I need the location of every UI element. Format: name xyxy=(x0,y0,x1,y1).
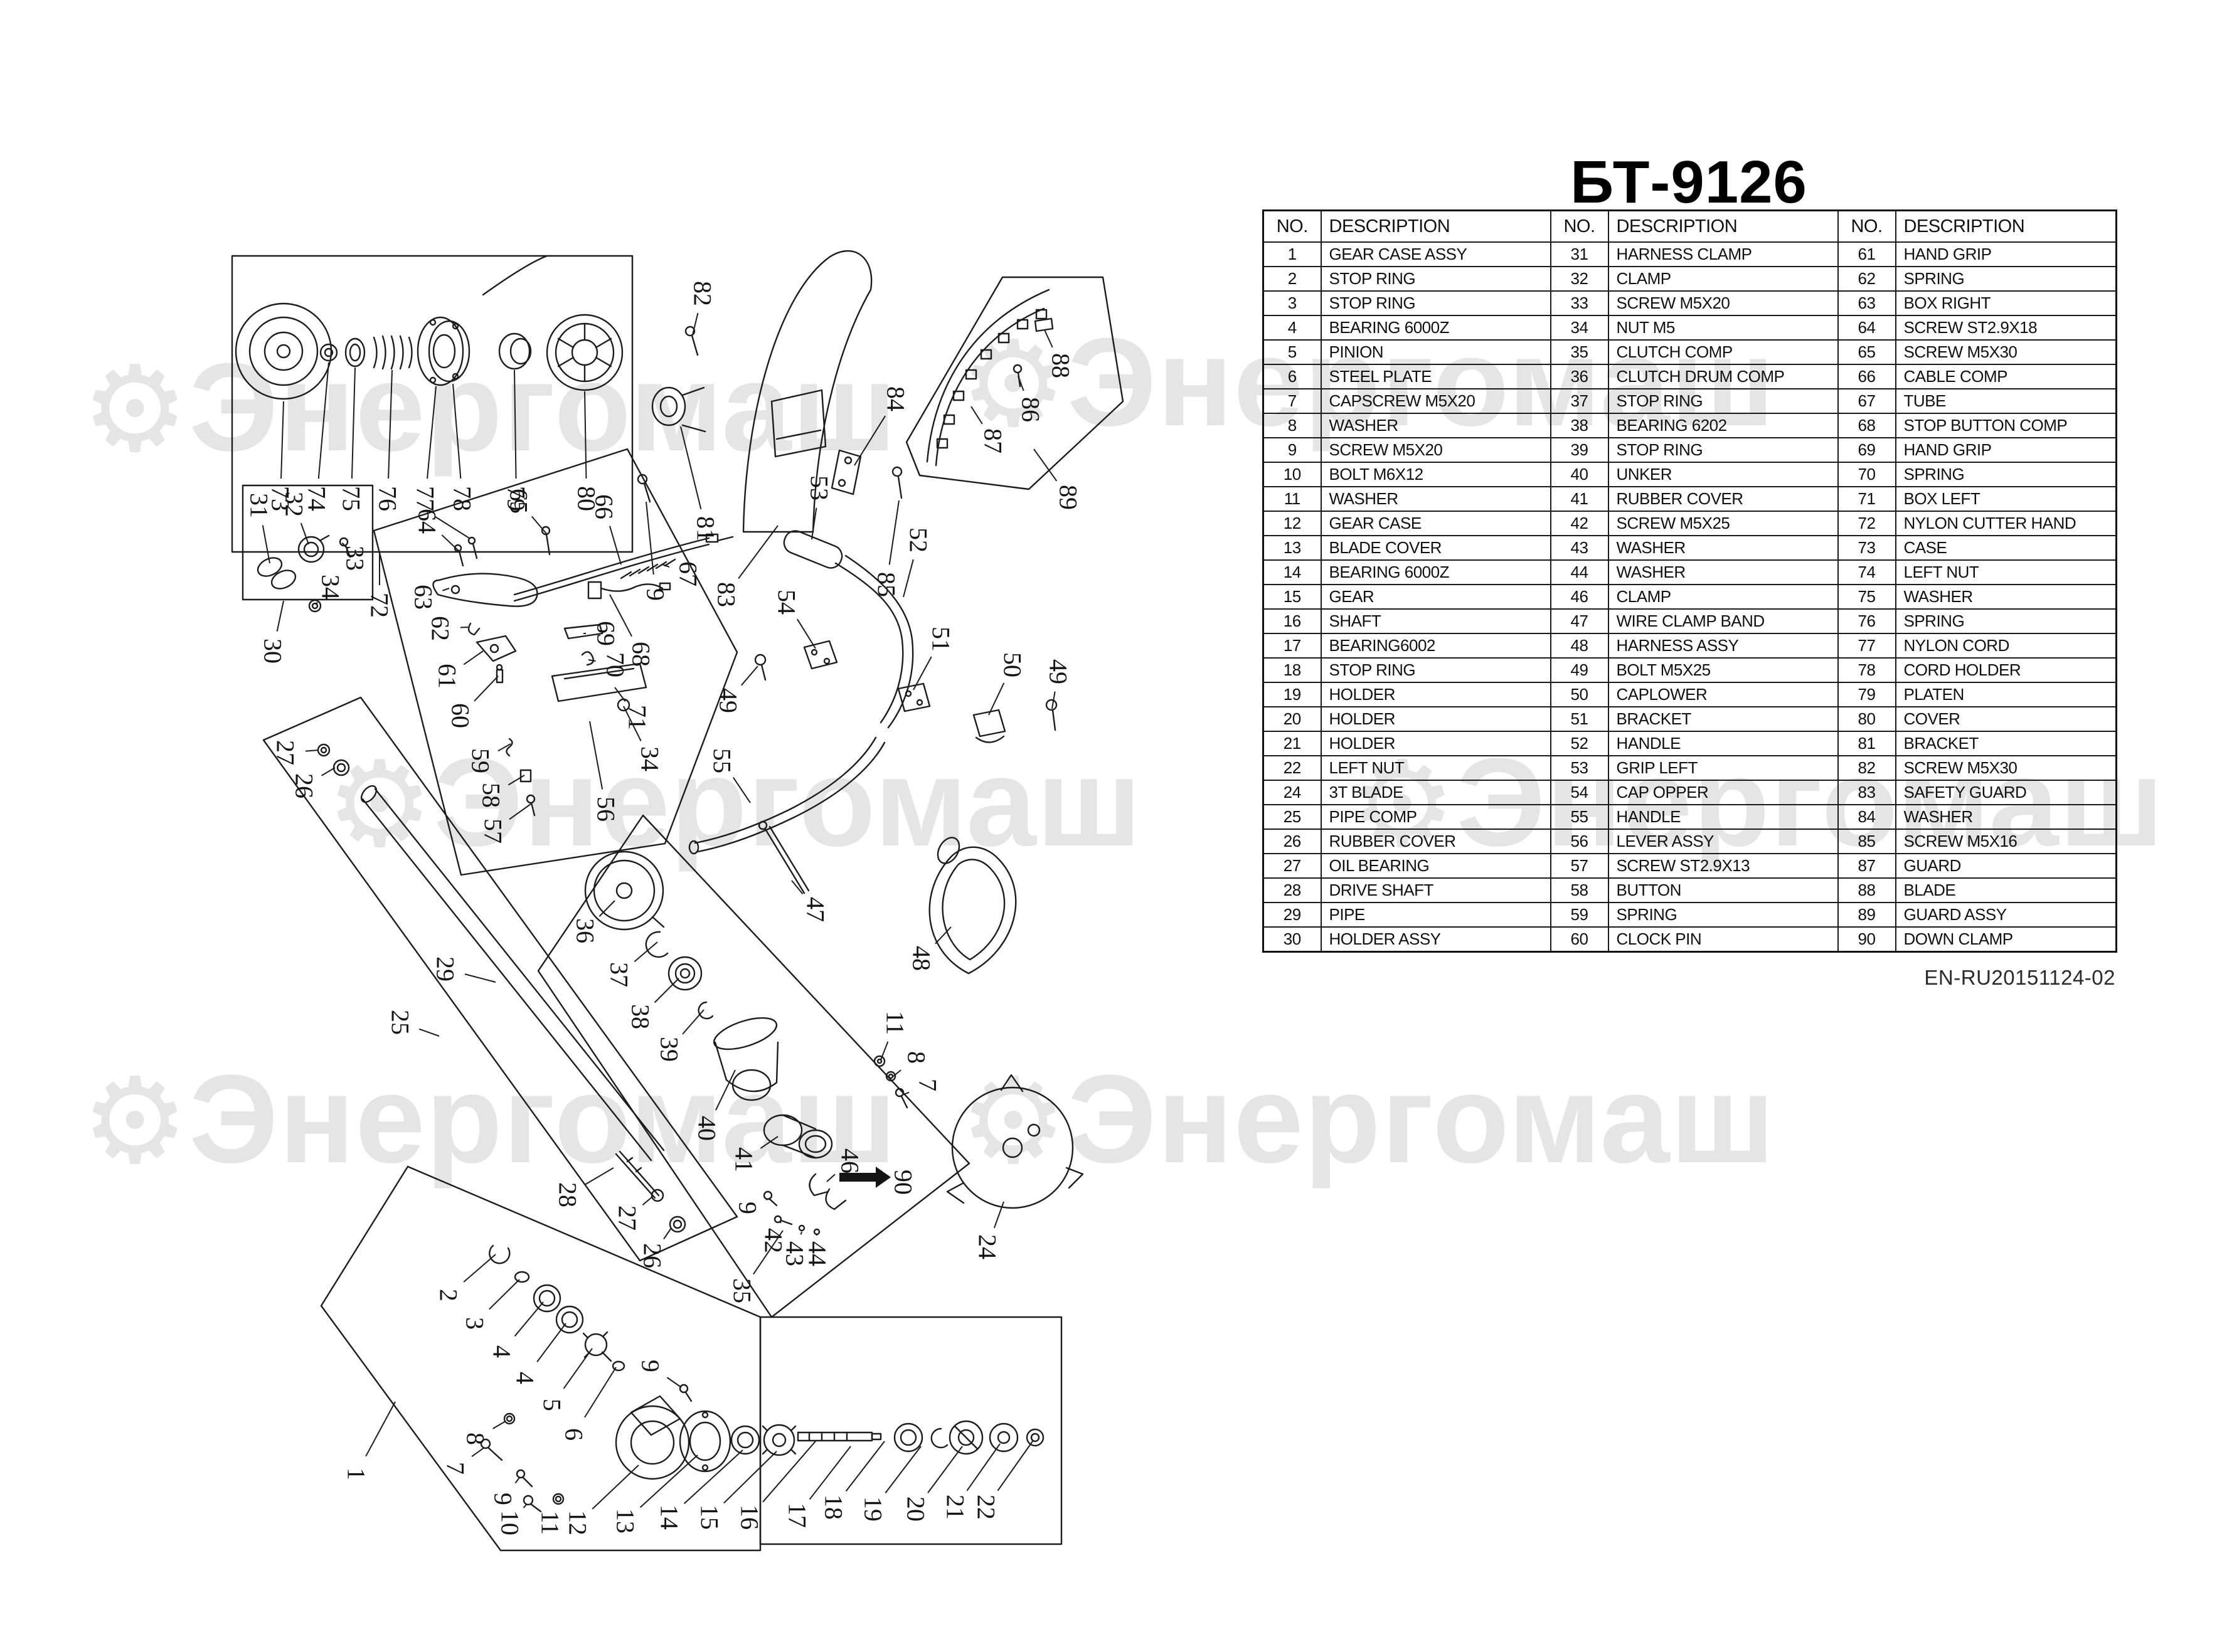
table-row: 8WASHER38BEARING 620268STOP BUTTON COMP xyxy=(1263,413,2117,438)
callout-number: 59 xyxy=(467,748,495,773)
callout-number: 64 xyxy=(413,509,442,534)
part-desc-cell: SCREW M5X30 xyxy=(1896,756,2117,780)
part-desc-cell: TUBE xyxy=(1896,389,2117,413)
callout-number: 6 xyxy=(560,1428,588,1441)
callout-number: 37 xyxy=(605,962,634,987)
part-desc-cell: SCREW M5X20 xyxy=(1321,438,1551,462)
callout-number: 21 xyxy=(942,1495,970,1520)
callout-number: 58 xyxy=(477,783,506,808)
leader-line xyxy=(827,1174,835,1182)
part-desc-cell: CLUTCH DRUM COMP xyxy=(1608,364,1838,389)
exploded-parts-diagram: 7273747576777879809818283848586878889313… xyxy=(0,0,1261,1652)
part-no-cell: 63 xyxy=(1838,291,1896,315)
table-row: 10BOLT M6X1240UNKER70SPRING xyxy=(1263,462,2117,487)
callout-number: 34 xyxy=(636,746,664,771)
part-desc-cell: HAND GRIP xyxy=(1896,242,2117,267)
part-desc-cell: LEFT NUT xyxy=(1321,756,1551,780)
part-desc-cell: HOLDER xyxy=(1321,707,1551,731)
leader-line xyxy=(903,559,913,597)
leader-line xyxy=(537,1323,566,1362)
part-desc-cell: RUBBER COVER xyxy=(1321,829,1551,854)
table-row: 3STOP RING33SCREW M5X2063BOX RIGHT xyxy=(1263,291,2117,315)
callout-number: 25 xyxy=(386,1010,415,1035)
table-row: 14BEARING 6000Z44WASHER74LEFT NUT xyxy=(1263,560,2117,585)
leader-line xyxy=(615,687,625,701)
part-desc-cell: WASHER xyxy=(1321,413,1551,438)
callout-number: 11 xyxy=(536,1511,565,1535)
part-desc-cell: STOP RING xyxy=(1321,267,1551,291)
leader-line xyxy=(515,1478,519,1483)
part-no-cell: 54 xyxy=(1551,780,1608,805)
callout-number: 26 xyxy=(639,1243,667,1268)
part-no-cell: 9 xyxy=(1263,438,1321,462)
leader-line xyxy=(281,401,284,479)
part-desc-cell: SCREW M5X16 xyxy=(1896,829,2117,854)
part-desc-cell: DRIVE SHAFT xyxy=(1321,878,1551,903)
part-desc-cell: SPRING xyxy=(1896,267,2117,291)
callout-number: 9 xyxy=(642,588,670,601)
callout-number: 76 xyxy=(374,486,402,511)
part-desc-cell: SCREW M5X20 xyxy=(1608,291,1838,315)
col-header-no: NO. xyxy=(1838,211,1896,243)
harness-parts xyxy=(759,822,1016,973)
part-desc-cell: BOX RIGHT xyxy=(1896,291,2117,315)
callout-number: 46 xyxy=(836,1148,864,1173)
part-no-cell: 1 xyxy=(1263,242,1321,267)
callout-number: 90 xyxy=(890,1170,918,1195)
callout-number: 9 xyxy=(637,1360,665,1372)
leader-line xyxy=(655,978,679,1002)
table-row: 13BLADE COVER43WASHER73CASE xyxy=(1263,536,2117,560)
part-no-cell: 37 xyxy=(1551,389,1608,413)
leader-line xyxy=(667,1377,681,1387)
part-no-cell: 77 xyxy=(1838,633,1896,658)
callout-number: 81 xyxy=(692,516,720,541)
part-desc-cell: NYLON CUTTER HAND xyxy=(1896,511,2117,536)
part-no-cell: 61 xyxy=(1838,242,1896,267)
part-desc-cell: BLADE COVER xyxy=(1321,536,1551,560)
callout-number: 50 xyxy=(999,652,1027,677)
part-no-cell: 41 xyxy=(1551,487,1608,511)
part-desc-cell: SCREW ST2.9X18 xyxy=(1896,315,2117,340)
callout-number: 11 xyxy=(881,1011,910,1035)
leader-line xyxy=(681,426,701,509)
part-desc-cell: WASHER xyxy=(1321,487,1551,511)
callout-number: 70 xyxy=(602,652,630,677)
clutch-parts xyxy=(585,852,907,1234)
part-desc-cell: COVER xyxy=(1896,707,2117,731)
leader-line xyxy=(890,500,899,564)
table-row: 5PINION35CLUTCH COMP65SCREW M5X30 xyxy=(1263,340,2117,364)
part-no-cell: 59 xyxy=(1551,903,1608,927)
part-no-cell: 12 xyxy=(1263,511,1321,536)
callout-number: 82 xyxy=(689,281,717,306)
part-desc-cell: GEAR CASE ASSY xyxy=(1321,242,1551,267)
leader-line xyxy=(366,1402,395,1456)
part-no-cell: 39 xyxy=(1551,438,1608,462)
part-desc-cell: BEARING 6000Z xyxy=(1321,315,1551,340)
col-header-no: NO. xyxy=(1551,211,1608,243)
leader-line xyxy=(885,1446,921,1493)
part-desc-cell: PINION xyxy=(1321,340,1551,364)
callout-number: 68 xyxy=(627,642,656,667)
callout-number: 61 xyxy=(433,664,462,689)
part-no-cell: 87 xyxy=(1838,854,1896,878)
part-no-cell: 22 xyxy=(1263,756,1321,780)
table-row: 18STOP RING49BOLT M5X2578CORD HOLDER xyxy=(1263,658,2117,682)
leader-line xyxy=(564,1348,592,1389)
part-desc-cell: BEARING6002 xyxy=(1321,633,1551,658)
table-row: 21HOLDER52HANDLE81BRACKET xyxy=(1263,731,2117,756)
leader-line xyxy=(997,1441,1033,1491)
leader-line xyxy=(388,370,392,479)
callout-number: 12 xyxy=(564,1510,592,1535)
table-row: 2STOP RING32CLAMP62SPRING xyxy=(1263,267,2117,291)
table-row: 20HOLDER51BRACKET80COVER xyxy=(1263,707,2117,731)
leader-line xyxy=(854,416,885,465)
leader-line xyxy=(642,1197,652,1205)
part-no-cell: 40 xyxy=(1551,462,1608,487)
part-desc-cell: STOP RING xyxy=(1321,291,1551,315)
leader-line xyxy=(508,775,524,785)
part-desc-cell: SCREW M5X30 xyxy=(1896,340,2117,364)
blade-part xyxy=(947,1075,1083,1208)
trimmer-head-parts xyxy=(236,256,622,399)
page: ⚙Энергомаш ⚙Энергомаш ⚙Энергомаш ⚙Энерго… xyxy=(0,0,2217,1652)
part-desc-cell: STOP RING xyxy=(1608,389,1838,413)
part-no-cell: 64 xyxy=(1838,315,1896,340)
col-header-no: NO. xyxy=(1263,211,1321,243)
part-no-cell: 84 xyxy=(1838,805,1896,829)
leader-line xyxy=(427,386,436,479)
callout-number: 89 xyxy=(1055,485,1083,510)
leader-line xyxy=(306,750,319,751)
leader-line xyxy=(588,660,596,661)
callout-number: 27 xyxy=(272,740,300,765)
callout-number: 39 xyxy=(656,1037,684,1062)
leader-line xyxy=(610,526,621,564)
leader-line xyxy=(881,1042,888,1060)
part-desc-cell: SAFETY GUARD xyxy=(1896,780,2117,805)
callout-number: 4 xyxy=(511,1372,540,1384)
col-header-description: DESCRIPTION xyxy=(1896,211,2117,243)
callout-number: 55 xyxy=(708,748,736,773)
callout-number: 13 xyxy=(612,1508,640,1533)
leader-line xyxy=(585,1367,616,1417)
gear-case-parts xyxy=(481,1246,1043,1512)
callout-number: 84 xyxy=(882,386,910,411)
callout-number: 35 xyxy=(728,1278,757,1303)
table-row: 25PIPE COMP55HANDLE84WASHER xyxy=(1263,805,2117,829)
part-no-cell: 85 xyxy=(1838,829,1896,854)
part-desc-cell: STEEL PLATE xyxy=(1321,364,1551,389)
leader-line xyxy=(801,1232,802,1234)
part-no-cell: 76 xyxy=(1838,609,1896,633)
leader-line xyxy=(474,676,498,701)
part-no-cell: 56 xyxy=(1551,829,1608,854)
part-desc-cell: CAPLOWER xyxy=(1608,682,1838,707)
callout-number: 31 xyxy=(245,493,274,518)
parts-table: NO. DESCRIPTION NO. DESCRIPTION NO. DESC… xyxy=(1262,209,2117,953)
table-row: 30HOLDER ASSY60CLOCK PIN90DOWN CLAMP xyxy=(1263,927,2117,951)
leader-line xyxy=(453,384,460,479)
part-desc-cell: STOP RING xyxy=(1608,438,1838,462)
leader-line xyxy=(263,525,270,563)
part-desc-cell: BEARING 6000Z xyxy=(1321,560,1551,585)
part-no-cell: 34 xyxy=(1551,315,1608,340)
part-no-cell: 28 xyxy=(1263,878,1321,903)
part-desc-cell: BUTTON xyxy=(1608,878,1838,903)
part-no-cell: 7 xyxy=(1263,389,1321,413)
callout-number: 3 xyxy=(461,1317,489,1330)
part-no-cell: 81 xyxy=(1838,731,1896,756)
table-row: 29PIPE59SPRING89GUARD ASSY xyxy=(1263,903,2117,927)
part-no-cell: 18 xyxy=(1263,658,1321,682)
part-desc-cell: LEVER ASSY xyxy=(1608,829,1838,854)
part-desc-cell: BEARING 6202 xyxy=(1608,413,1838,438)
part-no-cell: 53 xyxy=(1551,756,1608,780)
leader-line xyxy=(464,1254,496,1282)
part-desc-cell: SPRING xyxy=(1608,903,1838,927)
callout-number: 88 xyxy=(1047,353,1075,378)
callout-number: 38 xyxy=(627,1004,655,1029)
callout-number: 2 xyxy=(435,1289,463,1301)
part-no-cell: 75 xyxy=(1838,585,1896,609)
callout-number: 53 xyxy=(805,475,834,500)
part-desc-cell: CASE xyxy=(1896,536,2117,560)
leader-line xyxy=(592,1465,639,1509)
part-desc-cell: WASHER xyxy=(1896,805,2117,829)
part-no-cell: 14 xyxy=(1263,560,1321,585)
part-no-cell: 2 xyxy=(1263,267,1321,291)
part-desc-cell: CLOCK PIN xyxy=(1608,927,1838,951)
part-desc-cell: CAPSCREW M5X20 xyxy=(1321,389,1551,413)
part-desc-cell: BRACKET xyxy=(1608,707,1838,731)
part-desc-cell: PIPE xyxy=(1321,903,1551,927)
callout-number: 62 xyxy=(427,616,455,641)
part-no-cell: 82 xyxy=(1838,756,1896,780)
callout-number: 65 xyxy=(505,489,533,514)
part-no-cell: 3 xyxy=(1263,291,1321,315)
part-no-cell: 42 xyxy=(1551,511,1608,536)
part-no-cell: 38 xyxy=(1551,413,1608,438)
parts-table-header-row: NO. DESCRIPTION NO. DESCRIPTION NO. DESC… xyxy=(1263,211,2117,243)
part-no-cell: 16 xyxy=(1263,609,1321,633)
part-no-cell: 49 xyxy=(1551,658,1608,682)
part-desc-cell: SCREW M5X25 xyxy=(1608,511,1838,536)
leader-line xyxy=(460,627,468,628)
part-desc-cell: NYLON CORD xyxy=(1896,633,2117,658)
part-no-cell: 6 xyxy=(1263,364,1321,389)
callout-number: 8 xyxy=(903,1051,931,1064)
part-no-cell: 79 xyxy=(1838,682,1896,707)
leader-line xyxy=(585,1168,614,1185)
leader-line xyxy=(967,1444,1000,1491)
callout-number: 67 xyxy=(674,561,703,586)
table-row: 9SCREW M5X2039STOP RING69HAND GRIP xyxy=(1263,438,2117,462)
table-row: 27OIL BEARING57SCREW ST2.9X1387GUARD xyxy=(1263,854,2117,878)
part-desc-cell: WIRE CLAMP BAND xyxy=(1608,609,1838,633)
leader-line xyxy=(472,1448,484,1456)
part-no-cell: 47 xyxy=(1551,609,1608,633)
part-no-cell: 62 xyxy=(1838,267,1896,291)
pipe-parts xyxy=(318,744,685,1232)
callout-number: 33 xyxy=(341,546,369,571)
callout-number: 54 xyxy=(773,590,801,615)
callout-number: 10 xyxy=(496,1510,524,1535)
part-no-cell: 11 xyxy=(1263,487,1321,511)
part-no-cell: 83 xyxy=(1838,780,1896,805)
callout-number: 30 xyxy=(259,638,287,664)
part-desc-cell: HANDLE xyxy=(1608,731,1838,756)
callout-number: 49 xyxy=(1045,659,1073,684)
part-desc-cell: BOLT M6X12 xyxy=(1321,462,1551,487)
leader-line xyxy=(489,1279,519,1310)
leader-line xyxy=(1034,449,1056,481)
leader-line xyxy=(442,588,449,591)
callout-number: 8 xyxy=(462,1432,490,1445)
table-row: 26RUBBER COVER56LEVER ASSY85SCREW M5X16 xyxy=(1263,829,2117,854)
part-no-cell: 32 xyxy=(1551,267,1608,291)
callout-number: 15 xyxy=(696,1505,724,1530)
callout-number: 48 xyxy=(908,946,936,971)
callout-number: 7 xyxy=(914,1079,942,1091)
table-row: 1GEAR CASE ASSY31HARNESS CLAMP61HAND GRI… xyxy=(1263,242,2117,267)
leader-line xyxy=(797,619,816,649)
callout-number: 56 xyxy=(592,797,620,822)
callout-number: 75 xyxy=(338,486,366,511)
part-no-cell: 36 xyxy=(1551,364,1608,389)
part-no-cell: 50 xyxy=(1551,682,1608,707)
leader-line xyxy=(646,502,654,574)
callout-number: 52 xyxy=(905,527,933,553)
col-header-description: DESCRIPTION xyxy=(1321,211,1551,243)
leader-line xyxy=(514,370,516,479)
callout-number: 51 xyxy=(927,627,955,652)
leader-line xyxy=(532,516,547,534)
part-no-cell: 15 xyxy=(1263,585,1321,609)
leader-line xyxy=(760,1136,778,1148)
callout-number: 9 xyxy=(489,1493,518,1505)
callout-number: 7 xyxy=(442,1462,470,1475)
callout-number: 71 xyxy=(624,705,652,730)
part-no-cell: 73 xyxy=(1838,536,1896,560)
leader-line xyxy=(509,804,531,819)
part-desc-cell: STOP RING xyxy=(1321,658,1551,682)
part-desc-cell: CLAMP xyxy=(1608,267,1838,291)
leader-line xyxy=(664,1228,671,1239)
part-desc-cell: RUBBER COVER xyxy=(1608,487,1838,511)
callout-number: 9 xyxy=(734,1202,762,1214)
part-desc-cell: SPRING xyxy=(1896,609,2117,633)
part-no-cell: 8 xyxy=(1263,413,1321,438)
part-desc-cell: PIPE COMP xyxy=(1321,805,1551,829)
part-desc-cell: CABLE COMP xyxy=(1896,364,2117,389)
leader-line xyxy=(1045,330,1053,347)
part-no-cell: 78 xyxy=(1838,658,1896,682)
callout-number: 83 xyxy=(713,582,741,607)
part-no-cell: 43 xyxy=(1551,536,1608,560)
leader-line xyxy=(419,1029,439,1036)
part-no-cell: 89 xyxy=(1838,903,1896,927)
leader-line xyxy=(742,666,758,686)
part-desc-cell: HANDLE xyxy=(1608,805,1838,829)
callout-number: 66 xyxy=(590,494,619,519)
callout-number: 40 xyxy=(693,1116,721,1141)
part-desc-cell: GUARD ASSY xyxy=(1896,903,2117,927)
part-no-cell: 88 xyxy=(1838,878,1896,903)
callout-number: 26 xyxy=(290,773,319,798)
part-desc-cell: GRIP LEFT xyxy=(1608,756,1838,780)
leader-line xyxy=(590,721,602,790)
part-desc-cell: HARNESS CLAMP xyxy=(1608,242,1838,267)
callout-number: 47 xyxy=(802,897,830,922)
part-desc-cell: SHAFT xyxy=(1321,609,1551,633)
part-desc-cell: HOLDER xyxy=(1321,682,1551,707)
part-no-cell: 66 xyxy=(1838,364,1896,389)
leader-line xyxy=(884,1177,887,1178)
leader-line xyxy=(738,526,778,578)
part-desc-cell: WASHER xyxy=(1608,536,1838,560)
callout-number: 16 xyxy=(736,1505,764,1530)
table-row: 17BEARING600248HARNESS ASSY77NYLON CORD xyxy=(1263,633,2117,658)
leader-line xyxy=(465,974,496,982)
part-no-cell: 19 xyxy=(1263,682,1321,707)
table-row: 243T BLADE54CAP OPPER83SAFETY GUARD xyxy=(1263,780,2117,805)
callout-number: 87 xyxy=(979,428,1007,453)
callout-number: 22 xyxy=(972,1495,1001,1520)
callout-number: 17 xyxy=(784,1503,812,1528)
callout-number: 19 xyxy=(859,1496,888,1522)
part-no-cell: 10 xyxy=(1263,462,1321,487)
table-row: 12GEAR CASE42SCREW M5X2572NYLON CUTTER H… xyxy=(1263,511,2117,536)
leader-line xyxy=(928,1446,962,1493)
callout-number: 72 xyxy=(366,593,394,618)
part-no-cell: 48 xyxy=(1551,633,1608,658)
part-desc-cell: GEAR xyxy=(1321,585,1551,609)
table-row: 16SHAFT47WIRE CLAMP BAND76SPRING xyxy=(1263,609,2117,633)
leader-line xyxy=(780,1222,781,1223)
part-desc-cell: CORD HOLDER xyxy=(1896,658,2117,682)
part-no-cell: 68 xyxy=(1838,413,1896,438)
part-no-cell: 35 xyxy=(1551,340,1608,364)
part-no-cell: 65 xyxy=(1838,340,1896,364)
leader-line xyxy=(464,651,483,665)
leader-line xyxy=(693,313,698,335)
part-no-cell: 44 xyxy=(1551,560,1608,585)
part-desc-cell: LEFT NUT xyxy=(1896,560,2117,585)
part-desc-cell: UNKER xyxy=(1608,462,1838,487)
callout-number: 49 xyxy=(715,688,743,713)
callout-number: 34 xyxy=(317,574,345,600)
part-desc-cell: WASHER xyxy=(1608,560,1838,585)
part-desc-cell: CLUTCH COMP xyxy=(1608,340,1838,364)
part-no-cell: 60 xyxy=(1551,927,1608,951)
part-no-cell: 70 xyxy=(1838,462,1896,487)
part-desc-cell: HARNESS ASSY xyxy=(1608,633,1838,658)
table-row: 28DRIVE SHAFT58BUTTON88BLADE xyxy=(1263,878,2117,903)
part-desc-cell: BOLT M5X25 xyxy=(1608,658,1838,682)
leader-line xyxy=(683,1010,704,1034)
table-row: 22LEFT NUT53GRIP LEFT82SCREW M5X30 xyxy=(1263,756,2117,780)
callout-number: 1 xyxy=(343,1468,371,1480)
part-no-cell: 67 xyxy=(1838,389,1896,413)
leader-line xyxy=(523,1504,527,1508)
part-no-cell: 13 xyxy=(1263,536,1321,560)
callout-number: 77 xyxy=(412,486,440,511)
part-no-cell: 90 xyxy=(1838,927,1896,951)
callout-number: 24 xyxy=(974,1234,1002,1259)
